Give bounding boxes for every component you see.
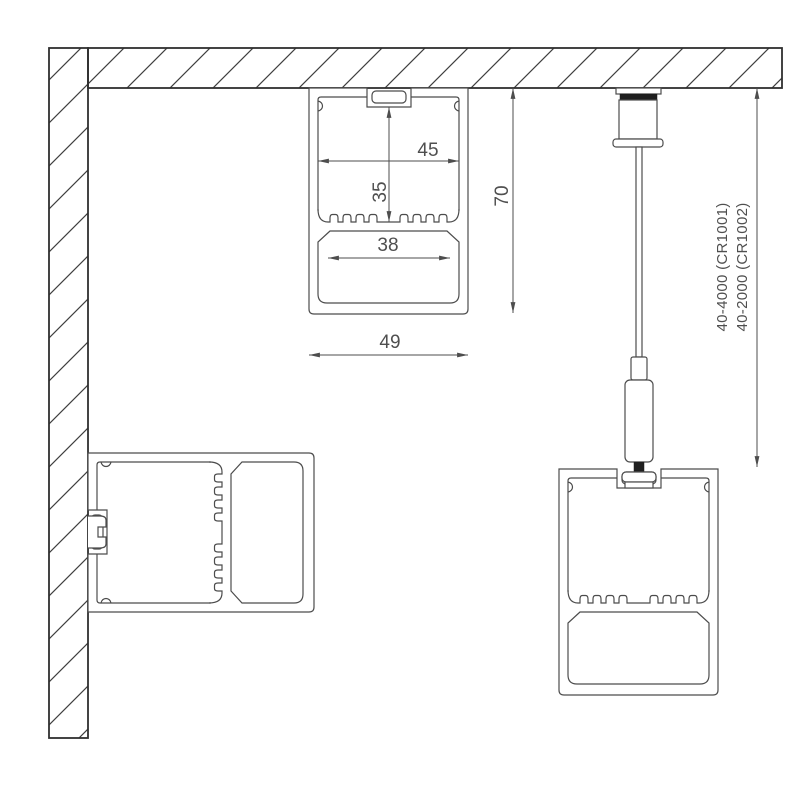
diagram-canvas: 45 35 38 49 70 40-4000 (CR1001) 40-2000 …	[0, 0, 800, 800]
suspension-disc-plate	[625, 482, 653, 488]
diagram-page: 45 35 38 49 70 40-4000 (CR1001) 40-2000 …	[0, 0, 800, 800]
canopy-ceiling-plate	[616, 88, 661, 94]
suspension-code-1: 40-4000 (CR1001)	[714, 202, 731, 331]
canopy-gasket	[620, 94, 657, 100]
ceiling-section	[88, 48, 782, 88]
dim-opening-width-label: 38	[377, 235, 398, 256]
suspension-cable	[636, 147, 642, 357]
dim-outer-width-label: 49	[379, 332, 400, 353]
dim-outer-height: 70	[492, 88, 513, 313]
canopy-flange	[613, 139, 663, 147]
cable-connector	[631, 357, 647, 380]
suspension-assembly	[613, 88, 663, 472]
dim-inner-height-label: 35	[370, 181, 391, 202]
suspension-code-2: 40-2000 (CR1002)	[734, 202, 751, 331]
gripper-stem	[634, 462, 644, 472]
wall-mounted-profile	[88, 453, 314, 612]
dim-inner-width-label: 45	[417, 140, 438, 161]
suspended-profile	[559, 469, 718, 695]
suspension-disc	[622, 472, 656, 482]
dim-outer-width: 49	[309, 332, 468, 355]
cable-gripper	[625, 380, 653, 462]
dim-outer-height-label: 70	[492, 185, 513, 206]
wall-section	[49, 48, 88, 738]
canopy-body	[619, 100, 657, 139]
dim-suspension-length: 40-4000 (CR1001) 40-2000 (CR1002)	[714, 88, 757, 467]
